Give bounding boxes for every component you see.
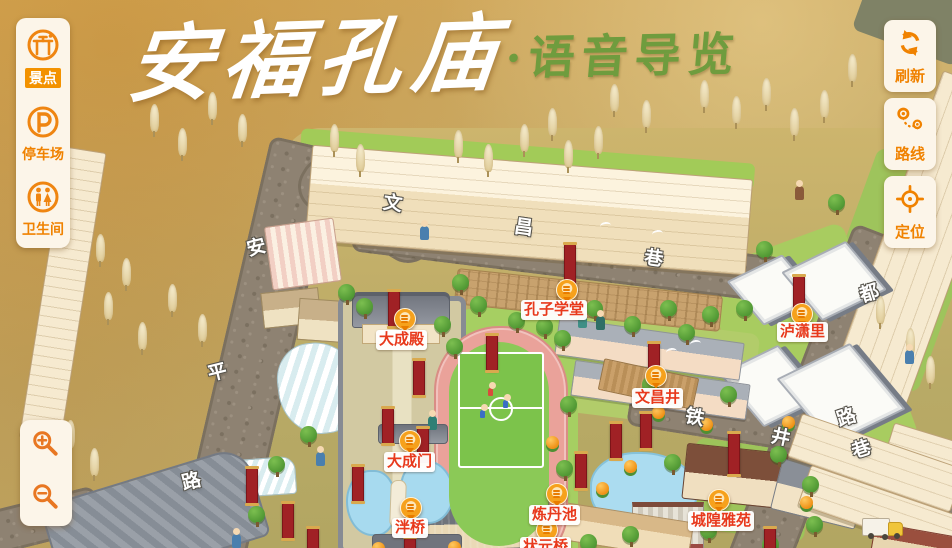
- poplar-tree-icon: [96, 234, 105, 262]
- tree-icon: [356, 298, 373, 315]
- player-figure: [488, 388, 493, 396]
- street-name-char: 巷: [643, 242, 666, 271]
- tree-icon: [678, 324, 695, 341]
- street-name-char: 昌: [513, 211, 536, 240]
- tree-icon: [802, 476, 819, 493]
- poplar-tree-icon: [454, 130, 463, 158]
- poplar-tree-icon: [564, 140, 573, 168]
- poplar-tree-icon: [848, 54, 857, 82]
- sidebar-item-restroom[interactable]: 卫生间: [22, 180, 64, 238]
- audio-marker[interactable]: [556, 279, 578, 301]
- landmark-label[interactable]: 泸潇里: [777, 322, 828, 342]
- tree-icon: [300, 426, 317, 443]
- poplar-tree-icon: [548, 108, 557, 136]
- truck-wheel: [894, 533, 900, 539]
- refresh-button[interactable]: 刷新: [884, 20, 936, 92]
- sidebar-item-label: 停车场: [22, 145, 64, 163]
- banner-decoration: [404, 538, 416, 548]
- player-figure: [503, 400, 508, 408]
- landmark-label[interactable]: 大成门: [384, 452, 435, 472]
- player-figure: [480, 410, 485, 418]
- landmark-label[interactable]: 泮桥: [392, 518, 428, 538]
- audio-marker[interactable]: [394, 308, 416, 330]
- sidebar-item-label: 卫生间: [22, 220, 64, 238]
- poplar-tree-icon: [926, 356, 935, 384]
- tree-icon: [560, 396, 577, 413]
- tree-icon: [806, 516, 823, 533]
- orange-tree-icon: [372, 542, 385, 548]
- tree-icon: [446, 338, 463, 355]
- scenic-spot-icon: [26, 28, 60, 67]
- tree-icon: [622, 526, 639, 543]
- truck-wheel: [882, 534, 888, 540]
- landmark-label[interactable]: 炼丹池: [529, 505, 580, 525]
- orange-tree-icon: [546, 436, 559, 449]
- tool-button-label: 定位: [895, 221, 925, 242]
- tree-icon: [338, 284, 355, 301]
- poplar-tree-icon: [330, 124, 339, 152]
- route-icon: [894, 105, 926, 142]
- map-building-pink-striped: [264, 217, 342, 290]
- person-figure: [795, 186, 804, 200]
- orange-tree-icon: [800, 496, 813, 509]
- landmark-label[interactable]: 大成殿: [376, 330, 427, 350]
- tree-icon: [624, 316, 641, 333]
- street-name-char: 文: [382, 187, 405, 216]
- tree-icon: [268, 456, 285, 473]
- locate-button[interactable]: 定位: [884, 176, 936, 248]
- orange-tree-icon: [596, 482, 609, 495]
- page-title: 安福孔庙: [123, 0, 513, 120]
- orange-tree-icon: [448, 541, 461, 548]
- sidebar-item-parking[interactable]: 停车场: [22, 105, 64, 163]
- route-button[interactable]: 路线: [884, 98, 936, 170]
- landmark-label[interactable]: 孔子学堂: [521, 300, 587, 320]
- poplar-tree-icon: [610, 84, 619, 112]
- banner-decoration: [575, 453, 587, 489]
- banner-decoration: [282, 503, 294, 539]
- banner-decoration: [610, 423, 622, 459]
- tree-icon: [452, 274, 469, 291]
- audio-marker[interactable]: [645, 365, 667, 387]
- tree-icon: [702, 306, 719, 323]
- person-figure: [596, 316, 605, 330]
- banner-decoration: [486, 335, 498, 371]
- sidebar-panel: 景点 停车场: [16, 18, 70, 248]
- field-center-circle: [489, 397, 513, 421]
- poplar-tree-icon: [594, 126, 603, 154]
- tree-icon: [536, 318, 553, 335]
- zoom-out-button[interactable]: [28, 479, 64, 520]
- poplar-tree-icon: [642, 100, 651, 128]
- poplar-tree-icon: [198, 314, 207, 342]
- tree-icon: [556, 460, 573, 477]
- audio-marker[interactable]: [546, 483, 568, 505]
- banner-decoration: [307, 528, 319, 548]
- banner-decoration: [413, 360, 425, 396]
- landmark-label[interactable]: 状元桥: [520, 537, 571, 548]
- parking-icon: [26, 105, 60, 144]
- tree-icon: [664, 454, 681, 471]
- tree-icon: [660, 300, 677, 317]
- page-subtitle: ·语音导览: [503, 18, 744, 88]
- poplar-tree-icon: [122, 258, 131, 286]
- poplar-tree-icon: [732, 96, 741, 124]
- zoom-in-button[interactable]: [28, 426, 64, 467]
- banner-decoration: [352, 466, 364, 502]
- poplar-tree-icon: [90, 448, 99, 476]
- tree-icon: [248, 506, 265, 523]
- poplar-tree-icon: [238, 114, 247, 142]
- tree-icon: [580, 534, 597, 548]
- tree-icon: [756, 241, 773, 258]
- person-figure: [316, 452, 325, 466]
- banner-decoration: [728, 433, 740, 475]
- person-figure: [420, 226, 429, 240]
- tree-icon: [828, 194, 845, 211]
- tool-button-label: 刷新: [895, 65, 925, 86]
- poplar-tree-icon: [762, 78, 771, 106]
- tree-icon: [554, 330, 571, 347]
- truck-wheel: [868, 533, 874, 539]
- tree-icon: [434, 316, 451, 333]
- refresh-icon: [894, 27, 926, 64]
- audio-marker[interactable]: [708, 489, 730, 511]
- poplar-tree-icon: [178, 128, 187, 156]
- poplar-tree-icon: [168, 284, 177, 312]
- tree-icon: [470, 296, 487, 313]
- sidebar-item-label: 景点: [25, 68, 61, 88]
- poplar-tree-icon: [138, 322, 147, 350]
- poplar-tree-icon: [520, 124, 529, 152]
- person-figure: [232, 534, 241, 548]
- restroom-icon: [26, 180, 60, 219]
- landmark-label[interactable]: 文昌井: [632, 388, 683, 408]
- audio-marker[interactable]: [399, 430, 421, 452]
- sidebar-item-scenic[interactable]: 景点: [25, 28, 61, 88]
- poplar-tree-icon: [820, 90, 829, 118]
- poplar-tree-icon: [104, 292, 113, 320]
- tree-icon: [736, 300, 753, 317]
- banner-decoration: [764, 528, 776, 548]
- poplar-tree-icon: [484, 144, 493, 172]
- person-figure: [905, 350, 914, 364]
- landmark-label[interactable]: 城隍雅苑: [688, 511, 754, 531]
- poplar-tree-icon: [356, 144, 365, 172]
- audio-marker[interactable]: [400, 497, 422, 519]
- poplar-tree-icon: [790, 108, 799, 136]
- orange-tree-icon: [624, 460, 637, 473]
- locate-icon: [894, 183, 926, 220]
- zoom-panel: [20, 420, 72, 526]
- banner-decoration: [246, 468, 258, 504]
- tree-icon: [720, 386, 737, 403]
- tool-button-label: 路线: [895, 143, 925, 164]
- banner-decoration: [382, 408, 394, 444]
- banner-decoration: [640, 413, 652, 449]
- map-canvas[interactable]: 文 昌 巷 安 平 路 铁 井 都 路 巷 大成殿 孔子学堂 泸潇里 文昌井 大…: [0, 0, 952, 548]
